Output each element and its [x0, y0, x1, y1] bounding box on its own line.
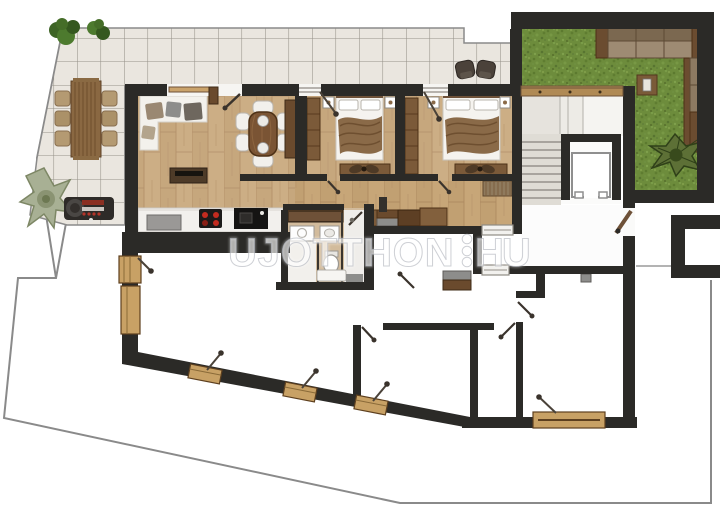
svg-text:HU: HU — [475, 231, 529, 275]
svg-text:UJOTTHON: UJOTTHON — [228, 231, 454, 275]
